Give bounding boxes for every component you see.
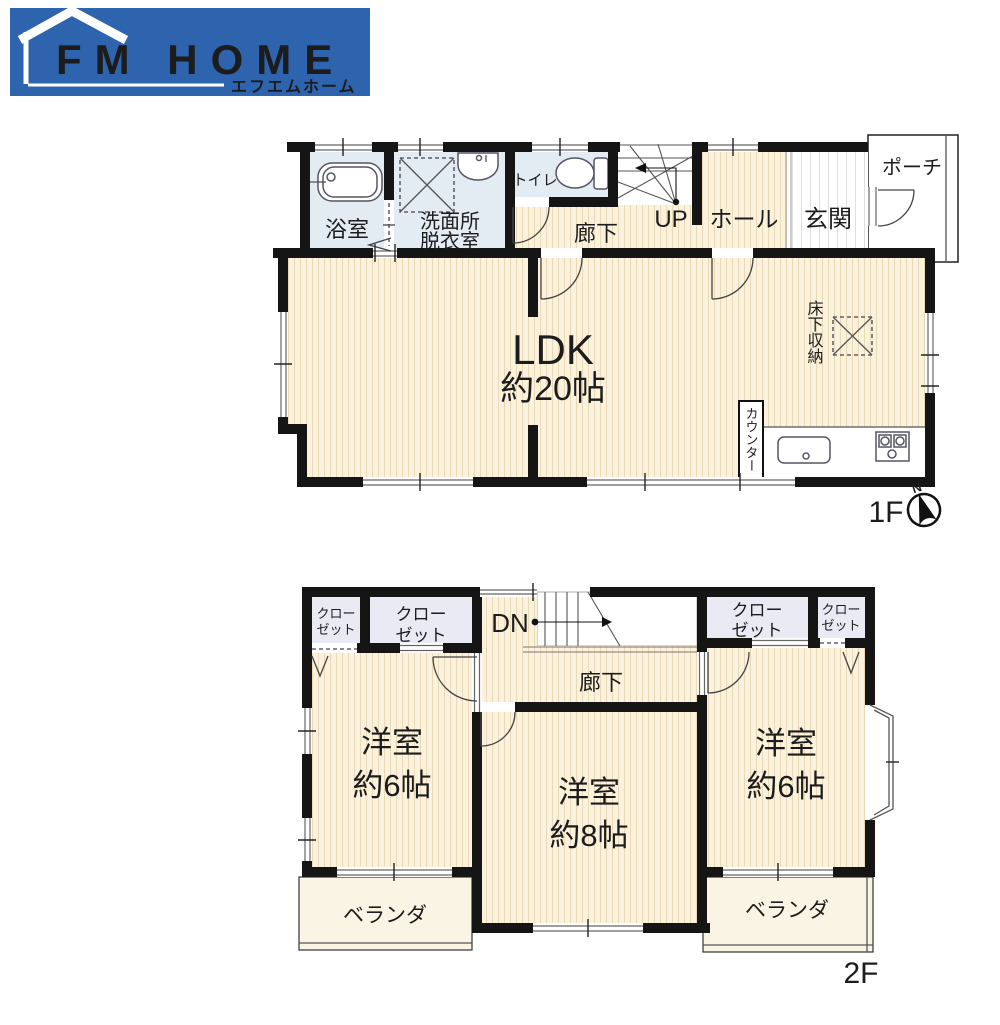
closet-west-small-label-2: ゼット <box>316 622 355 637</box>
ldk-size-label: 約20帖 <box>500 370 606 408</box>
veranda-east-label: ベランダ <box>745 899 829 922</box>
room-west-floor <box>312 653 472 867</box>
floor2-label: 2F <box>843 957 878 990</box>
closet-east-large-label-2: ゼット <box>732 621 783 640</box>
entrance-floor <box>790 152 868 248</box>
stove-icon <box>876 432 909 461</box>
bay-window <box>870 705 899 820</box>
toilet-label: トイレ <box>512 172 557 189</box>
closet-west-small-label-1: クロー <box>316 606 355 621</box>
corridor1f-label: 廊下 <box>574 221 618 246</box>
veranda-west-label: ベランダ <box>343 904 427 927</box>
room-east-size: 約6帖 <box>746 769 825 804</box>
washroom-label-1: 洗面所 <box>420 210 480 233</box>
washroom-label-2: 脱衣室 <box>420 230 480 253</box>
room-east-name: 洋室 <box>755 726 817 761</box>
closet-east-small-label-2: ゼット <box>821 618 860 633</box>
room-west-name: 洋室 <box>361 725 423 760</box>
brand-subtitle: エフエムホーム <box>231 78 357 96</box>
counter-label: カウンター <box>744 407 759 472</box>
floor2-plan: クロー ゼット クロー ゼット クロー ゼット クロー ゼット DN 廊下 洋室… <box>298 583 899 990</box>
bath-label: 浴室 <box>325 217 369 242</box>
porch-label: ポーチ <box>882 156 942 179</box>
toilet-icon <box>556 158 608 189</box>
bathtub-icon <box>310 163 382 201</box>
hall-label: ホール <box>710 206 779 232</box>
closet-west-large-label-2: ゼット <box>396 626 447 645</box>
floor1-plan: 浴室 洗面所 脱衣室 トイレ 廊下 UP ホール 玄関 ポーチ LDK 約20帖… <box>273 135 958 530</box>
ldk-name-label: LDK <box>512 326 594 373</box>
closet-west-large-label-1: クロー <box>396 605 447 624</box>
closet-east-large-label-1: クロー <box>732 601 783 620</box>
stairs-up-label: UP <box>654 206 687 233</box>
stairs2f-floor <box>537 592 697 646</box>
hall-floor <box>702 152 787 248</box>
floorplan-canvas: FM HOME エフエムホーム <box>0 0 1000 1020</box>
brand-text: FM HOME <box>56 36 345 83</box>
stairs-dn-label: DN <box>491 608 529 638</box>
corridor2f-label: 廊下 <box>579 670 623 695</box>
underfloor-storage-label: 床下収納 <box>805 300 824 365</box>
brand-logo: FM HOME エフエムホーム <box>10 8 370 96</box>
floor1-label: 1F <box>868 496 903 529</box>
room-center-name: 洋室 <box>558 775 620 810</box>
closet-east-small-label-1: クロー <box>821 602 860 617</box>
room-west-size: 約6帖 <box>352 768 431 803</box>
entrance-label: 玄関 <box>804 206 852 233</box>
room-center-size: 約8帖 <box>549 818 628 853</box>
sink-icon <box>458 153 498 180</box>
